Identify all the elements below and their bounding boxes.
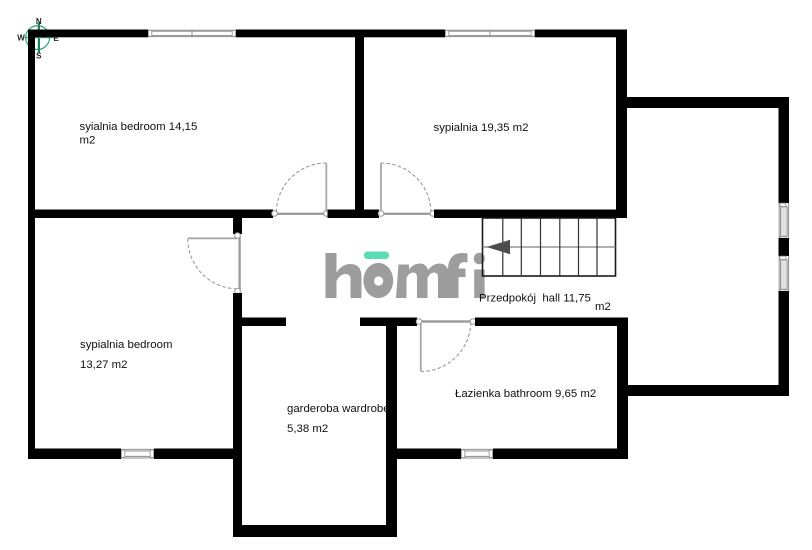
svg-text:m2: m2 [80, 135, 96, 147]
svg-text:m2: m2 [595, 301, 611, 313]
svg-text:Przedpokój hall 11,75: Przedpokój hall 11,75 [479, 293, 591, 305]
svg-text:garderoba wardrobe: garderoba wardrobe [287, 403, 390, 415]
svg-text:sypialnia bedroom: sypialnia bedroom [80, 339, 172, 351]
svg-text:sypialnia 19,35 m2: sypialnia 19,35 m2 [434, 122, 529, 134]
svg-text:Łazienka bathroom 9,65 m2: Łazienka bathroom 9,65 m2 [455, 388, 596, 400]
svg-text:syialnia bedroom 14,15: syialnia bedroom 14,15 [80, 121, 198, 133]
svg-text:N: N [36, 17, 42, 26]
svg-text:S: S [36, 52, 42, 61]
svg-text:13,27 m2: 13,27 m2 [80, 359, 128, 371]
svg-text:W: W [17, 34, 25, 43]
svg-text:5,38 m2: 5,38 m2 [287, 423, 328, 435]
